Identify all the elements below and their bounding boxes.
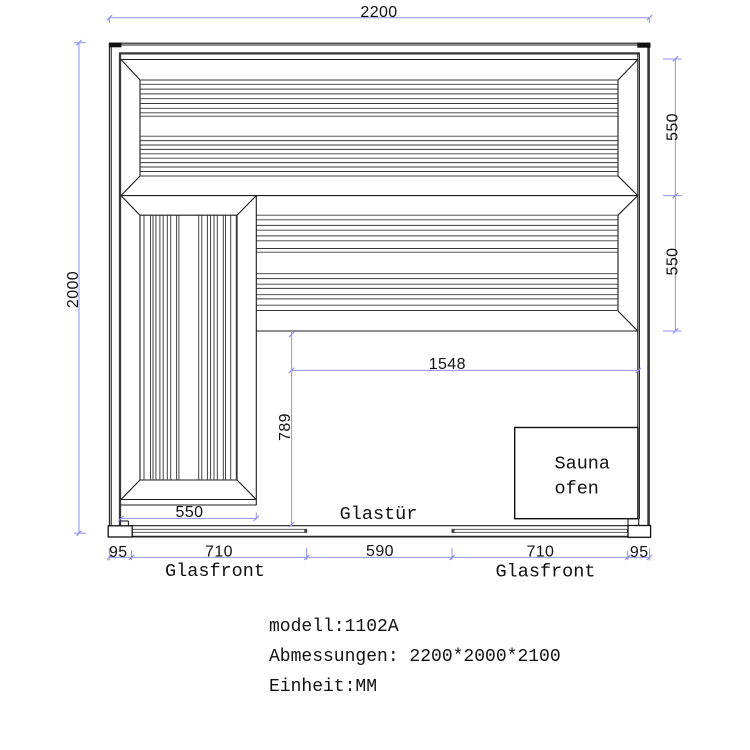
svg-text:710: 710 [526, 544, 554, 561]
svg-text:Abmessungen: 2200*2000*2100: Abmessungen: 2200*2000*2100 [269, 647, 561, 667]
svg-text:789: 789 [277, 413, 294, 441]
svg-text:550: 550 [664, 248, 681, 276]
svg-text:Einheit:MM: Einheit:MM [269, 677, 377, 697]
svg-text:550: 550 [664, 113, 681, 141]
svg-text:95: 95 [630, 544, 649, 561]
svg-text:Glasfront: Glasfront [165, 561, 265, 582]
svg-text:2200: 2200 [360, 4, 397, 21]
svg-text:modell:1102A: modell:1102A [269, 617, 399, 637]
svg-text:1548: 1548 [429, 356, 466, 373]
svg-text:95: 95 [109, 544, 128, 561]
svg-text:ofen: ofen [555, 479, 599, 500]
svg-text:710: 710 [205, 544, 233, 561]
svg-text:590: 590 [366, 543, 394, 560]
svg-text:550: 550 [176, 504, 204, 521]
svg-text:Sauna: Sauna [555, 454, 611, 475]
svg-text:Glasfront: Glasfront [496, 562, 596, 583]
svg-text:2000: 2000 [65, 271, 82, 308]
svg-text:Glastür: Glastür [340, 504, 418, 525]
